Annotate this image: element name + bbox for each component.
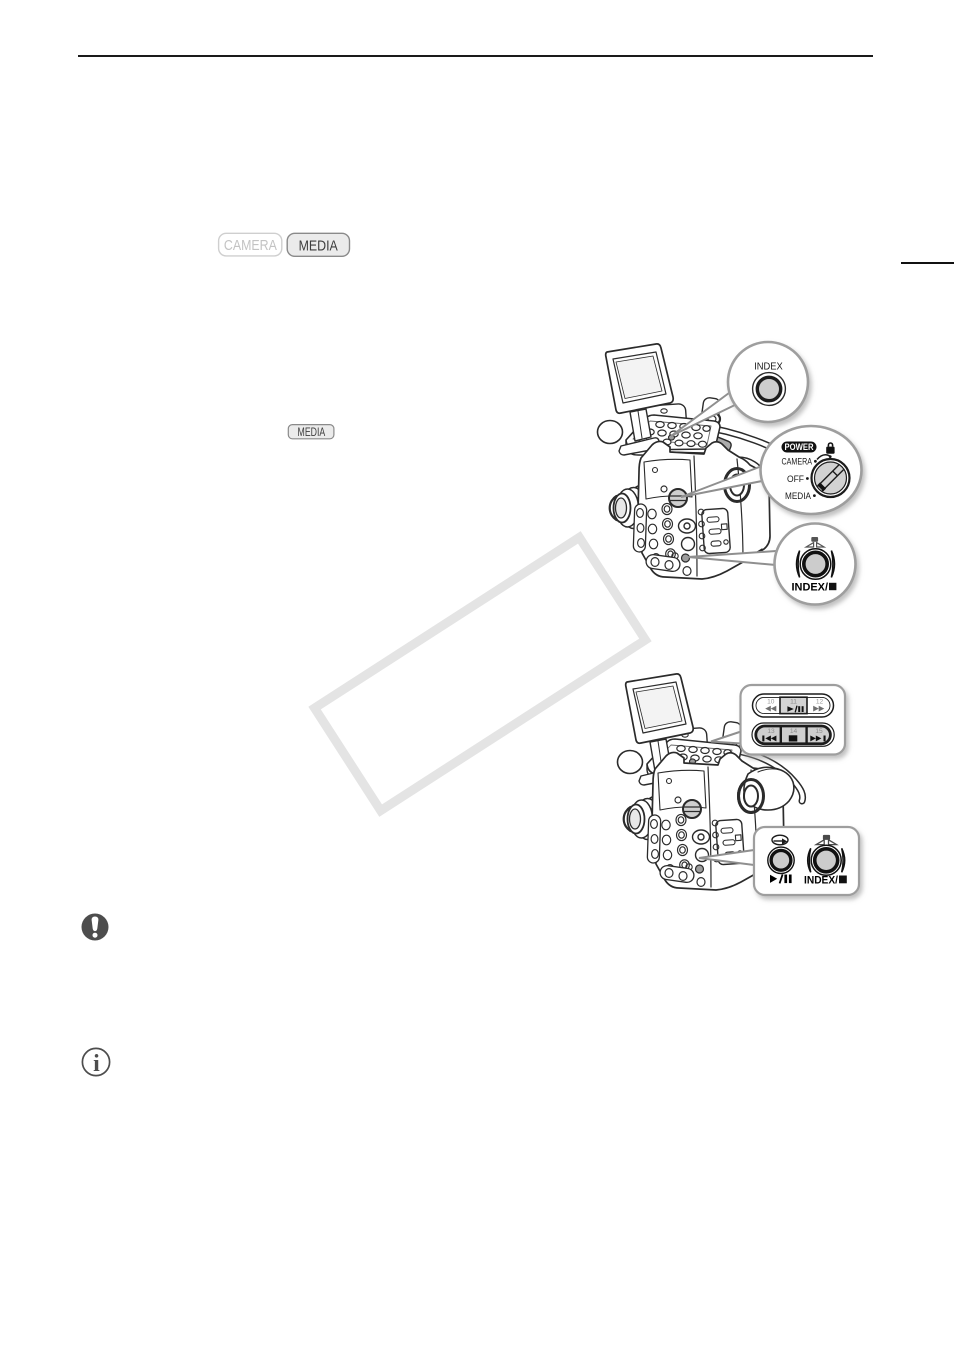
svg-text:INDEX: INDEX	[754, 362, 783, 373]
svg-text:INDEX/: INDEX/	[804, 874, 838, 886]
svg-text:INDEX/: INDEX/	[792, 582, 829, 594]
svg-text:13: 13	[767, 728, 775, 735]
svg-text:MEDIA: MEDIA	[298, 425, 326, 439]
svg-text:CAMERA: CAMERA	[782, 457, 813, 468]
svg-text:14: 14	[790, 728, 798, 735]
svg-text:i: i	[93, 1051, 100, 1077]
svg-text:OFF: OFF	[787, 474, 804, 485]
svg-text:12: 12	[816, 699, 824, 706]
svg-text:MEDIA: MEDIA	[299, 237, 338, 254]
svg-text:POWER: POWER	[785, 442, 815, 452]
svg-text:15: 15	[815, 728, 823, 735]
svg-text:MEDIA: MEDIA	[785, 491, 812, 502]
svg-text:10: 10	[767, 699, 775, 706]
svg-text:11: 11	[790, 699, 797, 706]
svg-text:CAMERA: CAMERA	[224, 238, 277, 254]
